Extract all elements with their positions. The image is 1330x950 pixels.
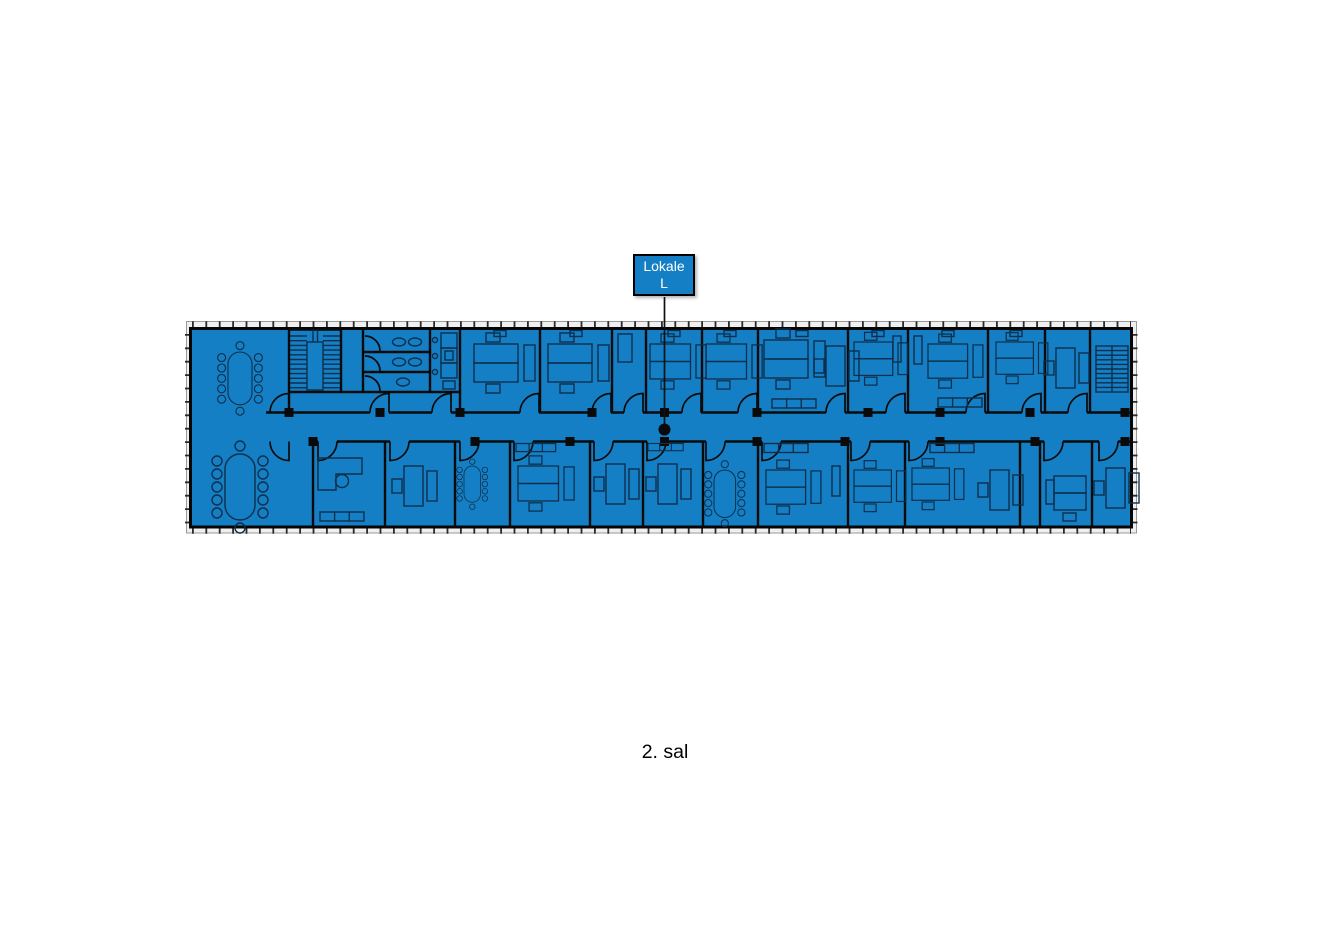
room-label[interactable]: Lokale L bbox=[633, 254, 695, 296]
room-label-line1: Lokale bbox=[635, 258, 693, 275]
floor-caption: 2. sal bbox=[565, 741, 765, 764]
marker-dot[interactable] bbox=[659, 424, 671, 436]
floor-plan bbox=[0, 0, 1330, 950]
floor-plan-page: Lokale L 2. sal bbox=[0, 0, 1330, 950]
room-label-line2: L bbox=[635, 275, 693, 292]
